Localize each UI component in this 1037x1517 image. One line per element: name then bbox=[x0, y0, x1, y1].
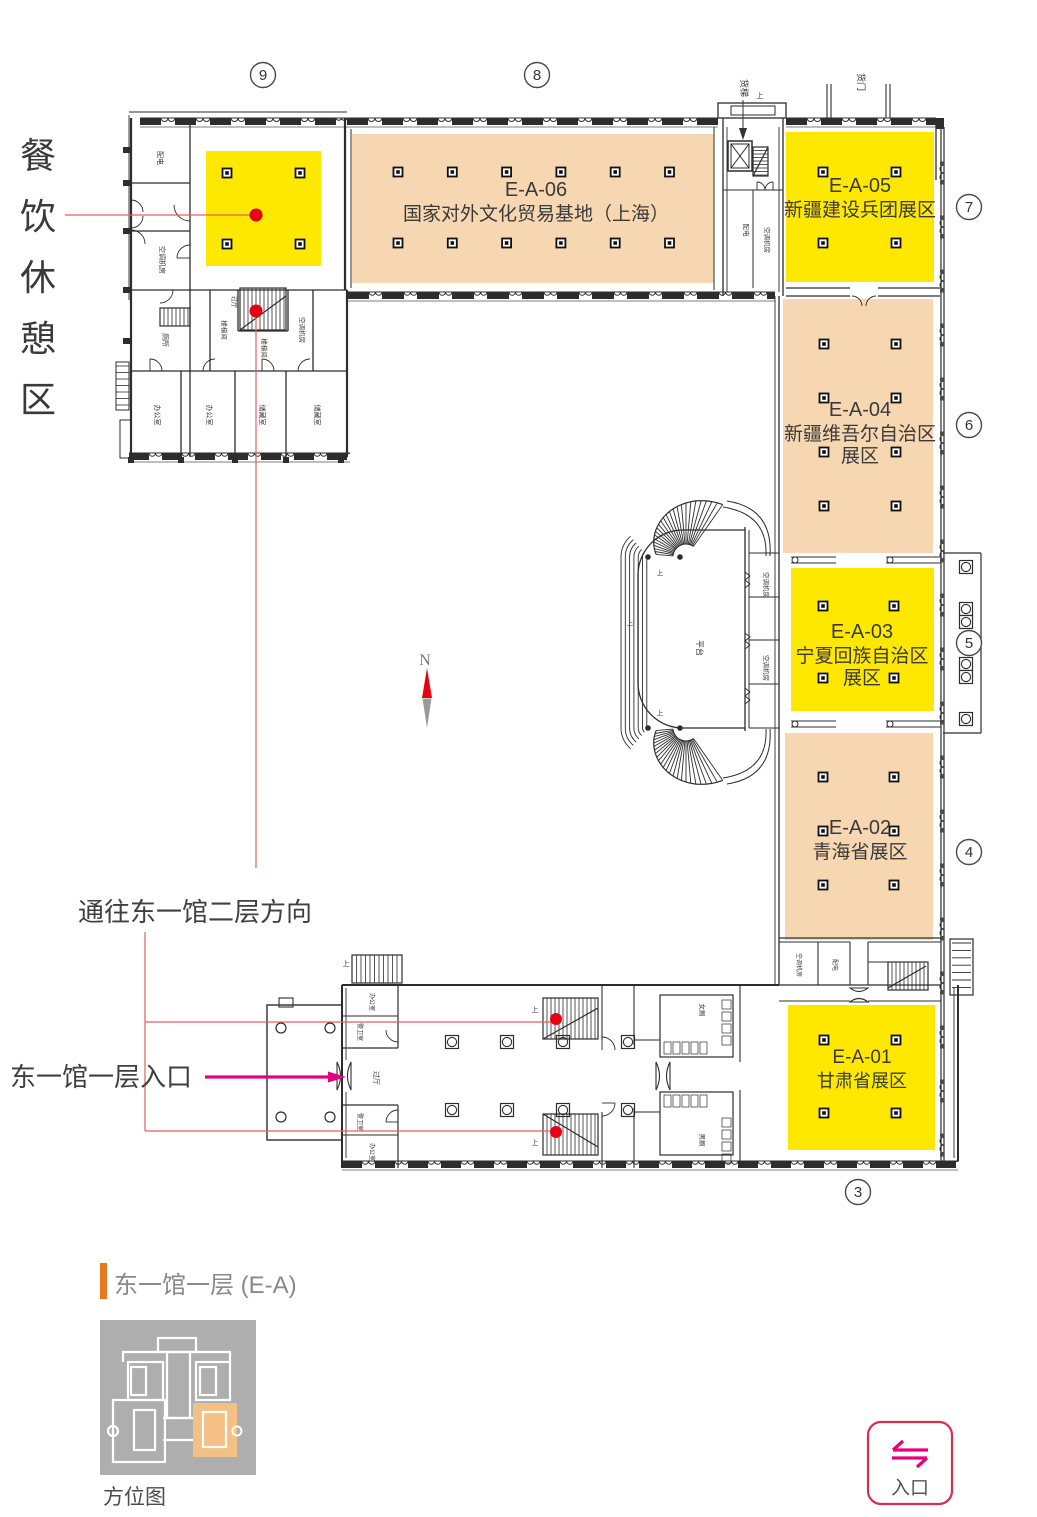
svg-text:东一馆一层入口: 东一馆一层入口 bbox=[10, 1062, 192, 1092]
svg-text:空调机房: 空调机房 bbox=[795, 953, 803, 977]
svg-text:上: 上 bbox=[532, 1005, 539, 1014]
svg-text:男厕: 男厕 bbox=[698, 1134, 706, 1148]
svg-text:上: 上 bbox=[532, 1138, 539, 1147]
svg-text:展区: 展区 bbox=[843, 668, 881, 689]
svg-text:办公室: 办公室 bbox=[368, 993, 376, 1011]
svg-text:N: N bbox=[419, 652, 431, 669]
svg-text:上: 上 bbox=[657, 708, 664, 717]
svg-text:E-A-02: E-A-02 bbox=[829, 817, 891, 839]
svg-text:8: 8 bbox=[533, 67, 541, 84]
svg-text:展区: 展区 bbox=[841, 446, 879, 467]
svg-text:5: 5 bbox=[965, 635, 973, 652]
svg-text:国家对外文化贸易基地（上海）: 国家对外文化贸易基地（上海） bbox=[403, 203, 669, 225]
svg-text:6: 6 bbox=[965, 417, 973, 434]
svg-text:E-A-05: E-A-05 bbox=[829, 175, 891, 197]
svg-text:储藏室: 储藏室 bbox=[313, 405, 322, 426]
svg-text:货门: 货门 bbox=[856, 73, 867, 91]
svg-text:入口: 入口 bbox=[891, 1478, 929, 1499]
svg-text:4: 4 bbox=[965, 844, 973, 861]
svg-text:空调机房: 空调机房 bbox=[762, 572, 771, 598]
svg-text:E-A-03: E-A-03 bbox=[831, 621, 893, 643]
svg-text:甘肃省展区: 甘肃省展区 bbox=[817, 1071, 907, 1091]
svg-text:配电: 配电 bbox=[831, 959, 839, 971]
svg-text:憩: 憩 bbox=[20, 318, 56, 359]
svg-text:区: 区 bbox=[20, 379, 56, 420]
svg-text:储藏室: 储藏室 bbox=[258, 405, 267, 426]
svg-text:办公室: 办公室 bbox=[368, 1143, 376, 1161]
svg-text:空调机房: 空调机房 bbox=[158, 246, 167, 274]
svg-text:上: 上 bbox=[343, 959, 350, 968]
svg-text:通往东一馆二层方向: 通往东一馆二层方向 bbox=[78, 897, 312, 927]
svg-text:E-A-01: E-A-01 bbox=[832, 1047, 891, 1068]
svg-text:E-A-04: E-A-04 bbox=[829, 399, 891, 421]
svg-text:7: 7 bbox=[965, 199, 973, 216]
svg-text:饮: 饮 bbox=[20, 196, 56, 237]
svg-text:餐: 餐 bbox=[20, 135, 56, 176]
svg-text:上: 上 bbox=[757, 91, 764, 100]
svg-text:上: 上 bbox=[627, 618, 634, 627]
svg-text:配电: 配电 bbox=[156, 151, 165, 165]
svg-text:新疆维吾尔自治区: 新疆维吾尔自治区 bbox=[784, 423, 936, 445]
svg-text:空调机房: 空调机房 bbox=[762, 655, 771, 681]
svg-text:上: 上 bbox=[657, 568, 664, 577]
svg-text:9: 9 bbox=[259, 67, 267, 84]
svg-text:空调机房: 空调机房 bbox=[298, 317, 307, 343]
svg-text:厕所: 厕所 bbox=[161, 333, 170, 347]
svg-text:女厕: 女厕 bbox=[698, 1004, 707, 1018]
svg-text:楼梯间: 楼梯间 bbox=[260, 338, 269, 358]
svg-text:平台: 平台 bbox=[695, 640, 705, 656]
svg-text:东一馆一层 (E-A): 东一馆一层 (E-A) bbox=[114, 1272, 297, 1299]
svg-text:空调机房: 空调机房 bbox=[763, 227, 772, 253]
svg-text:宁夏回族自治区: 宁夏回族自治区 bbox=[795, 645, 928, 667]
svg-text:警卫室: 警卫室 bbox=[356, 1023, 364, 1041]
svg-text:方位图: 方位图 bbox=[103, 1486, 166, 1509]
svg-text:配电: 配电 bbox=[742, 224, 751, 238]
svg-text:E-A-06: E-A-06 bbox=[505, 179, 567, 201]
svg-text:青海省展区: 青海省展区 bbox=[812, 841, 907, 863]
svg-text:新疆建设兵团展区: 新疆建设兵团展区 bbox=[784, 199, 936, 221]
svg-text:货梯: 货梯 bbox=[739, 79, 750, 97]
svg-text:3: 3 bbox=[854, 1184, 862, 1201]
svg-text:办公室: 办公室 bbox=[153, 405, 162, 426]
svg-text:休: 休 bbox=[20, 257, 56, 298]
svg-text:过厅: 过厅 bbox=[230, 296, 238, 308]
svg-text:办公室: 办公室 bbox=[205, 405, 214, 426]
svg-text:警卫室: 警卫室 bbox=[356, 1113, 364, 1131]
svg-text:楼梯间: 楼梯间 bbox=[220, 320, 229, 340]
svg-text:过厅: 过厅 bbox=[372, 1071, 381, 1085]
